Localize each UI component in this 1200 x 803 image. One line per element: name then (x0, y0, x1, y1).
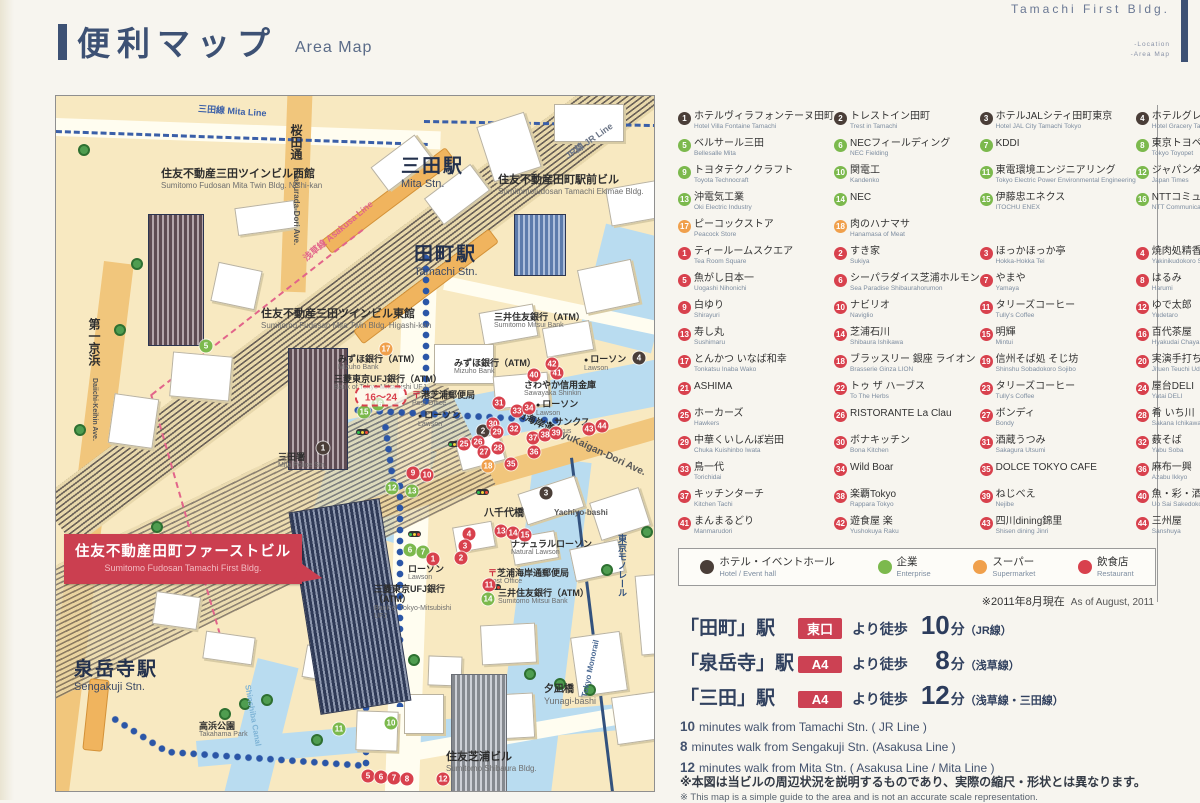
legend-item: 14芝浦石川Shibaura Ishikawa (834, 327, 980, 354)
poi-legend: 1ホテルヴィラフォンテーヌ田町Hotel Villa Fontaine Tama… (678, 111, 1156, 543)
legend-item: 7やまやYamaya (980, 273, 1136, 300)
legend-item: 16百代茶屋Hyakudai Chaya (1136, 327, 1200, 354)
legend-item: 13沖電気工業Oki Electric Industry (678, 192, 834, 219)
map-marker[interactable]: 44 (596, 420, 609, 433)
map-marker[interactable]: 36 (528, 446, 541, 459)
legend-item: 12ゆで太郎Yudetaro (1136, 300, 1200, 327)
legend-item: 13寿し丸Sushimaru (678, 327, 834, 354)
legend-marker-icon: 7 (980, 139, 993, 152)
legend-marker-icon: 13 (678, 328, 691, 341)
page: 便利マップ Area Map Tamachi First Bldg. -Loca… (0, 0, 1200, 800)
map-marker[interactable]: 1 (427, 553, 440, 566)
page-title-en: Area Map (295, 39, 372, 57)
map-marker[interactable]: 13 (495, 525, 508, 538)
legend-marker-icon: 10 (834, 166, 847, 179)
legend-item: 26RISTORANTE La Clau (834, 408, 980, 435)
map-marker-range[interactable]: 16〜24 (355, 386, 407, 407)
category-item: 企業Enterprise (878, 556, 931, 577)
legend-marker-icon: 5 (678, 139, 691, 152)
access-info: 「田町」駅東口より徒歩10分（JR線）「泉岳寺」駅A4より徒歩8分（浅草線）「三… (680, 610, 1064, 715)
legend-marker-icon: 32 (1136, 436, 1149, 449)
map-marker[interactable]: 34 (523, 402, 536, 415)
category-color-icon (973, 560, 987, 574)
nav-location[interactable]: -Location (1131, 40, 1170, 50)
disclaimer: ※本図は当ビルの周辺状況を説明するものであり、実際の縮尺・形状とは異なります。 … (680, 773, 1146, 803)
legend-item: 11東電環境エンジニアリングTokyo Electric Power Envir… (980, 165, 1136, 192)
corner-accent-bar (1181, 0, 1188, 62)
legend-marker-icon: 13 (678, 193, 691, 206)
legend-marker-icon: 4 (1136, 112, 1149, 125)
access-route-en: 8minutes walk from Sengakuji Stn. (Asaku… (680, 737, 994, 757)
map-marker[interactable]: 8 (401, 773, 414, 786)
legend-spacer (980, 219, 1136, 246)
legend-item: 6NECフィールディングNEC Fielding (834, 138, 980, 165)
legend-marker-icon: 11 (980, 301, 993, 314)
legend-item: 27ボンディBondy (980, 408, 1136, 435)
legend-item: 19信州そば処 そじ坊Shinshu Sobadokoro Sojibo (980, 354, 1136, 381)
legend-item: 2トレストイン田町Trest in Tamachi (834, 111, 980, 138)
legend-marker-icon: 22 (834, 382, 847, 395)
legend-marker-icon: 33 (678, 463, 691, 476)
map-marker[interactable]: 35 (505, 458, 518, 471)
map-marker[interactable]: 1 (317, 442, 330, 455)
legend-item: 29中華くいしんぼ岩田Chuka Kuishinbo Iwata (678, 435, 834, 462)
legend-marker-icon: 37 (678, 490, 691, 503)
legend-item: 43四川dining錦里Shisen dining Jinri (980, 516, 1136, 543)
legend-item: 31酒蔵うつみSakagura Utsumi (980, 435, 1136, 462)
map-marker[interactable]: 29 (491, 426, 504, 439)
legend-item: 18肉のハナマサHanamasa of Meat (834, 219, 980, 246)
title-accent-bar (58, 24, 67, 60)
map-marker[interactable]: 5 (362, 770, 375, 783)
legend-marker-icon: 26 (834, 409, 847, 422)
legend-item: 16NTTコミュニケーションズNTT Communications (1136, 192, 1200, 219)
map-marker[interactable]: 17 (380, 343, 393, 356)
legend-marker-icon: 27 (980, 409, 993, 422)
map-marker[interactable]: 6 (375, 771, 388, 784)
legend-item: 5ベルサール三田Bellesalle Mita (678, 138, 834, 165)
category-legend: ホテル・イベントホールHotel / Event hall企業Enterpris… (678, 548, 1156, 586)
map-marker[interactable]: 11 (333, 723, 346, 736)
legend-item: 8東京トヨペットTokyo Toyopet (1136, 138, 1200, 165)
legend-item: 44三州屋Sanshuya (1136, 516, 1200, 543)
legend-item: 9トヨタテクノクラフトToyota Technocraft (678, 165, 834, 192)
legend-marker-icon: 6 (834, 139, 847, 152)
legend-item: 33鳥一代Torichidai (678, 462, 834, 489)
map-marker[interactable]: 27 (478, 446, 491, 459)
map-marker[interactable]: 3 (540, 487, 553, 500)
legend-item: 39ねじべえNejibe (980, 489, 1136, 516)
map-marker[interactable]: 32 (508, 423, 521, 436)
legend-item: 17ピーコックストアPeacock Store (678, 219, 834, 246)
building-name: Tamachi First Bldg. (1011, 2, 1170, 16)
legend-marker-icon: 44 (1136, 517, 1149, 530)
legend-item: 1ホテルヴィラフォンテーヌ田町Hotel Villa Fontaine Tama… (678, 111, 834, 138)
legend-marker-icon: 23 (980, 382, 993, 395)
category-item: 飲食店Restaurant (1078, 556, 1134, 577)
map-marker[interactable]: 15 (358, 406, 371, 419)
map-marker[interactable]: 14 (507, 527, 520, 540)
legend-marker-icon: 3 (980, 247, 993, 260)
legend-marker-icon: 15 (980, 193, 993, 206)
map-marker[interactable]: 5 (200, 340, 213, 353)
map-marker[interactable]: 14 (482, 593, 495, 606)
legend-marker-icon: 5 (678, 274, 691, 287)
map-markers: 1234515161213671410111718910313334302932… (56, 96, 654, 791)
legend-item: 28肴 いち川Sakana Ichikawa (1136, 408, 1200, 435)
legend-marker-icon: 39 (980, 490, 993, 503)
legend-marker-icon: 9 (678, 301, 691, 314)
map-marker[interactable]: 40 (528, 369, 541, 382)
legend-marker-icon: 2 (834, 247, 847, 260)
legend-item: 25ホーカーズHawkers (678, 408, 834, 435)
legend-marker-icon: 19 (980, 355, 993, 368)
category-item: ホテル・イベントホールHotel / Event hall (700, 556, 835, 577)
as-of-date: ※2011年8月現在As of August, 2011 (982, 593, 1154, 609)
legend-item: 15伊藤忠エネクスITOCHU ENEX (980, 192, 1136, 219)
legend-marker-icon: 16 (1136, 193, 1149, 206)
legend-marker-icon: 20 (1136, 355, 1149, 368)
legend-marker-icon: 38 (834, 490, 847, 503)
legend-item: 23タリーズコーヒーTully's Coffee (980, 381, 1136, 408)
map-marker[interactable]: 15 (519, 529, 532, 542)
legend-item: 3ほっかほっか亭Hokka-Hokka Tei (980, 246, 1136, 273)
map-marker[interactable]: 28 (492, 442, 505, 455)
legend-item: 10ナビリオNaviglio (834, 300, 980, 327)
legend-item: 18ブラッスリー 銀座 ライオンBrasserie Ginza LION (834, 354, 980, 381)
legend-marker-icon: 21 (678, 382, 691, 395)
legend-item: 4ホテルグレイスリー田町Hotel Gracery Tamachi (1136, 111, 1200, 138)
legend-marker-icon: 30 (834, 436, 847, 449)
legend-item: 10関電工Kandenko (834, 165, 980, 192)
legend-marker-icon: 9 (678, 166, 691, 179)
access-route: 「三田」駅A4より徒歩12分（浅草線・三田線） (680, 680, 1064, 715)
legend-marker-icon: 40 (1136, 490, 1149, 503)
legend-marker-icon: 17 (678, 355, 691, 368)
map-marker[interactable]: 2 (455, 552, 468, 565)
legend-marker-icon: 42 (834, 517, 847, 530)
legend-item: 32薮そばYabu Soba (1136, 435, 1200, 462)
exit-badge: A4 (798, 691, 842, 708)
legend-marker-icon: 7 (980, 274, 993, 287)
legend-item: 20実演手打ちうどん 杵屋Jituen Teuchi Udon Kineya (1136, 354, 1200, 381)
legend-marker-icon: 18 (834, 220, 847, 233)
legend-item: 36麻布一興Azabu Ikkyo (1136, 462, 1200, 489)
legend-marker-icon: 12 (1136, 301, 1149, 314)
legend-marker-icon: 24 (1136, 382, 1149, 395)
legend-item: 6シーパラダイス芝浦ホルモンSea Paradise Shibaurahorum… (834, 273, 980, 300)
map-marker[interactable]: 18 (482, 460, 495, 473)
map-marker[interactable]: 7 (388, 772, 401, 785)
map-marker[interactable]: 6 (404, 544, 417, 557)
access-route-en: 10minutes walk from Tamachi Stn. ( JR Li… (680, 717, 994, 737)
map-marker[interactable]: 25 (458, 438, 471, 451)
legend-marker-icon: 14 (834, 193, 847, 206)
legend-marker-icon: 41 (678, 517, 691, 530)
legend-marker-icon: 8 (1136, 139, 1149, 152)
legend-marker-icon: 8 (1136, 274, 1149, 287)
legend-item: 38楽覇TokyoRappara Tokyo (834, 489, 980, 516)
legend-marker-icon: 16 (1136, 328, 1149, 341)
legend-marker-icon: 1 (678, 247, 691, 260)
legend-marker-icon: 17 (678, 220, 691, 233)
page-header: 便利マップ Area Map (58, 24, 372, 60)
map-marker[interactable]: 11 (483, 579, 496, 592)
legend-item: 7KDDI (980, 138, 1136, 165)
legend-item: 40魚・彩・酒処ふじやUo Sai Sakedokoro Fujiya (1136, 489, 1200, 516)
legend-item: 14NEC (834, 192, 980, 219)
access-info-en: 10minutes walk from Tamachi Stn. ( JR Li… (680, 717, 994, 778)
legend-marker-icon: 18 (834, 355, 847, 368)
legend-item: 22トゥ ザ ハーブスTo The Herbs (834, 381, 980, 408)
legend-marker-icon: 15 (980, 328, 993, 341)
legend-item: 37キッチンターチKitchen Tachi (678, 489, 834, 516)
legend-marker-icon: 6 (834, 274, 847, 287)
legend-marker-icon: 31 (980, 436, 993, 449)
legend-item: 34Wild Boar (834, 462, 980, 489)
category-color-icon (878, 560, 892, 574)
category-color-icon (700, 560, 714, 574)
legend-marker-icon: 3 (980, 112, 993, 125)
legend-marker-icon: 28 (1136, 409, 1149, 422)
exit-badge: 東口 (798, 618, 842, 639)
legend-marker-icon: 29 (678, 436, 691, 449)
access-route: 「泉岳寺」駅A4より徒歩8分（浅草線） (680, 645, 1064, 680)
legend-item: 2すき家Sukiya (834, 246, 980, 273)
legend-marker-icon: 12 (1136, 166, 1149, 179)
access-route: 「田町」駅東口より徒歩10分（JR線） (680, 610, 1064, 645)
area-map: 住友不動産田町ファーストビル Sumitomo Fudosan Tamachi … (55, 95, 655, 792)
category-item: スーパーSupermarket (973, 556, 1035, 577)
map-marker[interactable]: 12 (386, 482, 399, 495)
corner-nav: -Location -Area Map (1131, 40, 1170, 60)
map-marker[interactable]: 10 (385, 717, 398, 730)
map-marker[interactable]: 42 (546, 358, 559, 371)
legend-item: 9白ゆりShirayuri (678, 300, 834, 327)
map-marker[interactable]: 31 (493, 397, 506, 410)
legend-item: 15明輝Mintui (980, 327, 1136, 354)
legend-marker-icon: 10 (834, 301, 847, 314)
legend-item: 17とんかつ いなば和幸Tonkatsu Inaba Wako (678, 354, 834, 381)
legend-marker-icon: 2 (834, 112, 847, 125)
legend-item: 21ASHIMA (678, 381, 834, 408)
map-marker[interactable]: 10 (421, 469, 434, 482)
map-marker[interactable]: 4 (633, 352, 646, 365)
legend-marker-icon: 1 (678, 112, 691, 125)
category-color-icon (1078, 560, 1092, 574)
legend-item: 12ジャパンタイムズJapan Times (1136, 165, 1200, 192)
legend-item: 35DOLCE TOKYO CAFE (980, 462, 1136, 489)
exit-badge: A4 (798, 656, 842, 673)
map-marker[interactable]: 12 (437, 773, 450, 786)
legend-item: 24屋台DELIYatai DELI (1136, 381, 1200, 408)
map-marker[interactable]: 9 (407, 467, 420, 480)
page-title: 便利マップ (77, 27, 277, 60)
legend-item: 3ホテルJALシティ田町東京Hotel JAL City Tamachi Tok… (980, 111, 1136, 138)
info-panel: 1ホテルヴィラフォンテーヌ田町Hotel Villa Fontaine Tama… (678, 105, 1158, 800)
legend-item: 41まんまるどりManmarudori (678, 516, 834, 543)
map-marker[interactable]: 43 (583, 423, 596, 436)
legend-marker-icon: 43 (980, 517, 993, 530)
nav-areamap[interactable]: -Area Map (1131, 50, 1170, 60)
legend-item: 5魚がし日本一Uogashi Nihonichi (678, 273, 834, 300)
legend-spacer (1136, 219, 1200, 246)
legend-item: 8はるみHarumi (1136, 273, 1200, 300)
legend-marker-icon: 35 (980, 463, 993, 476)
map-marker[interactable]: 13 (406, 485, 419, 498)
legend-marker-icon: 34 (834, 463, 847, 476)
legend-marker-icon: 4 (1136, 247, 1149, 260)
legend-item: 4焼肉処精香園Yakinikudokoro Seikoen (1136, 246, 1200, 273)
legend-marker-icon: 25 (678, 409, 691, 422)
legend-item: 1ティールームスクエアTea Room Square (678, 246, 834, 273)
legend-item: 42遊食屋 楽Yushokuya Raku (834, 516, 980, 543)
legend-marker-icon: 11 (980, 166, 993, 179)
legend-marker-icon: 14 (834, 328, 847, 341)
legend-item: 30ボナキッチンBona Kitchen (834, 435, 980, 462)
legend-item: 11タリーズコーヒーTully's Coffee (980, 300, 1136, 327)
legend-marker-icon: 36 (1136, 463, 1149, 476)
map-marker[interactable]: 39 (550, 427, 563, 440)
